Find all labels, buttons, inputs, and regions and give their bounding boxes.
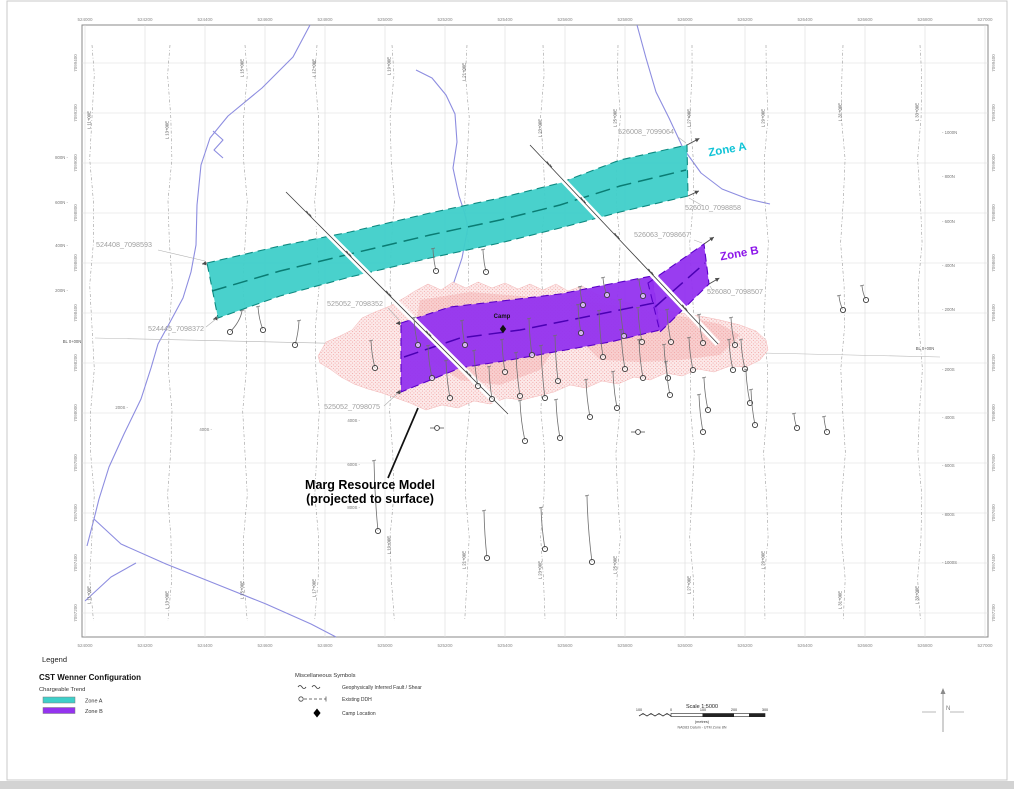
survey-line-label: L 25+00E	[613, 109, 618, 127]
survey-line-label: L 11+00E	[87, 586, 92, 604]
drillhole	[690, 367, 695, 372]
baseline-label: BL 0+00N	[916, 346, 935, 351]
survey-line-label: L 15+00E	[240, 59, 245, 77]
drillhole	[522, 438, 527, 443]
easting-label-top: 525600	[557, 17, 573, 22]
local-grid-label: - 800S	[942, 512, 955, 517]
scale-tick: 100	[700, 708, 706, 712]
easting-label-top: 525200	[437, 17, 453, 22]
legend-title: Legend	[42, 655, 67, 664]
survey-line-label: L 23+00E	[538, 561, 543, 579]
coordinate-label: 525052_7098352	[327, 299, 383, 308]
easting-label-bottom: 524200	[137, 643, 153, 648]
drillhole	[578, 330, 583, 335]
drillhole	[517, 393, 522, 398]
north-label: N	[946, 706, 950, 712]
easting-label-bottom: 524000	[77, 643, 93, 648]
map-content: 5240005240005242005242005244005244005246…	[55, 17, 996, 648]
drillhole	[863, 297, 868, 302]
coordinate-label: 524445_7098372	[148, 324, 204, 333]
easting-label-bottom: 526000	[677, 643, 693, 648]
coordinate-label: 524408_7098593	[96, 240, 152, 249]
northing-label-left: 7097400	[73, 554, 78, 572]
legend-swatch-zone-b	[43, 708, 75, 714]
drillhole	[542, 546, 547, 551]
easting-label-top: 526600	[857, 17, 873, 22]
easting-label-top: 524200	[137, 17, 153, 22]
survey-line-label: L 21+00E	[462, 551, 467, 569]
easting-label-top: 527000	[977, 17, 993, 22]
scale-datum: NAD83 Datum - UTM Zone 8N	[678, 726, 727, 730]
survey-line-label: L 25+00E	[613, 556, 618, 574]
drillhole	[824, 429, 829, 434]
northing-label-left: 7098000	[73, 404, 78, 422]
local-grid-label: - 1000N	[942, 130, 957, 135]
easting-label-top: 525400	[497, 17, 513, 22]
camp-label: Camp	[494, 314, 511, 320]
survey-line-label: L 13+00E	[165, 591, 170, 609]
drillhole	[752, 422, 757, 427]
scale-bar-fill-1	[703, 714, 735, 717]
easting-label-top: 526400	[797, 17, 813, 22]
local-grid-label: 600N -	[55, 200, 68, 205]
drillhole	[665, 375, 670, 380]
drillhole	[580, 302, 585, 307]
easting-label-bottom: 526600	[857, 643, 873, 648]
survey-line-label: L 23+00E	[538, 119, 543, 137]
drillhole	[489, 396, 494, 401]
local-grid-label: 800N -	[55, 155, 68, 160]
northing-label-left: 7099000	[73, 154, 78, 172]
survey-line-label: L 17+00E	[312, 579, 317, 597]
drillhole	[435, 426, 440, 431]
northing-label-right: 7098800	[991, 204, 996, 222]
local-grid-label: - 200N	[942, 307, 955, 312]
local-grid-label: - 400N	[942, 263, 955, 268]
survey-line-label: L 29+00E	[761, 109, 766, 127]
legend-label-zone-b: Zone B	[85, 709, 103, 715]
northing-label-right: 7098600	[991, 254, 996, 272]
northing-label-left: 7098800	[73, 204, 78, 222]
scale-tick: 300	[762, 708, 768, 712]
local-grid-label: 400S -	[199, 427, 212, 432]
legend-misc-title: Miscellaneous Symbols	[295, 673, 356, 679]
drillhole	[640, 375, 645, 380]
survey-line-label: L 27+00E	[687, 576, 692, 594]
map-svg: 5240005240005242005242005244005244005246…	[0, 0, 1014, 789]
local-grid-label: 600S -	[347, 462, 360, 467]
legend-cst-title: CST Wenner Configuration	[39, 673, 141, 682]
baseline-label: BL 0+00N	[63, 339, 82, 344]
drillhole	[587, 414, 592, 419]
annotation-subtitle: (projected to surface)	[306, 492, 434, 506]
easting-label-top: 524600	[257, 17, 273, 22]
drillhole	[260, 327, 265, 332]
northing-label-left: 7098600	[73, 254, 78, 272]
drillhole	[622, 366, 627, 371]
northing-label-right: 7097800	[991, 454, 996, 472]
drillhole	[794, 425, 799, 430]
drillhole	[529, 352, 534, 357]
drillhole	[604, 292, 609, 297]
northing-label-left: 7098400	[73, 304, 78, 322]
drillhole	[668, 339, 673, 344]
easting-label-bottom: 525200	[437, 643, 453, 648]
northing-label-left: 7097600	[73, 504, 78, 522]
survey-line-label: L 19+00E	[387, 536, 392, 554]
drillhole	[429, 375, 434, 380]
local-grid-label: - 400S	[942, 415, 955, 420]
northing-label-right: 7099000	[991, 154, 996, 172]
drillhole	[375, 528, 380, 533]
drillhole	[640, 293, 645, 298]
northing-label-left: 7097200	[73, 604, 78, 622]
northing-label-left: 7097800	[73, 454, 78, 472]
easting-label-bottom: 525000	[377, 643, 393, 648]
legend-label-fault: Geophysically Inferred Fault / Shear	[342, 685, 422, 691]
drillhole	[700, 429, 705, 434]
survey-line-label: L 33+00E	[915, 103, 920, 121]
easting-label-bottom: 526400	[797, 643, 813, 648]
drillhole	[542, 395, 547, 400]
drillhole	[639, 339, 644, 344]
local-grid-label: 400N -	[55, 243, 68, 248]
northing-label-right: 7098000	[991, 404, 996, 422]
easting-label-bottom: 524600	[257, 643, 273, 648]
legend-label-ddh: Existing DDH	[342, 697, 372, 703]
drillhole	[636, 430, 641, 435]
scale-tick: 0	[670, 708, 672, 712]
easting-label-top: 524400	[197, 17, 213, 22]
drillhole	[705, 407, 710, 412]
survey-line-label: L 17+00E	[312, 59, 317, 77]
survey-line-label: L 31+00E	[838, 103, 843, 121]
drillhole	[433, 268, 438, 273]
northing-label-left: 7099200	[73, 104, 78, 122]
coordinate-label: 526008_7099064	[618, 127, 674, 136]
drillhole	[292, 342, 297, 347]
northing-label-right: 7098200	[991, 354, 996, 372]
easting-label-bottom: 525800	[617, 643, 633, 648]
drillhole	[462, 342, 467, 347]
annotation-title: Marg Resource Model	[305, 478, 435, 492]
drillhole	[483, 269, 488, 274]
easting-label-top: 526200	[737, 17, 753, 22]
northing-label-right: 7097600	[991, 504, 996, 522]
northing-label-right: 7098400	[991, 304, 996, 322]
easting-label-bottom: 524400	[197, 643, 213, 648]
easting-label-bottom: 526200	[737, 643, 753, 648]
drillhole	[621, 333, 626, 338]
survey-line-label: L 31+00E	[838, 591, 843, 609]
drillhole	[732, 342, 737, 347]
northing-label-right: 7097400	[991, 554, 996, 572]
easting-label-top: 524000	[77, 17, 93, 22]
bottom-bar	[0, 781, 1014, 789]
drillhole	[475, 383, 480, 388]
survey-line-label: L 11+00E	[87, 111, 92, 129]
local-grid-label: - 200S	[942, 367, 955, 372]
scale-tick: 200	[731, 708, 737, 712]
easting-label-top: 526000	[677, 17, 693, 22]
drillhole	[730, 367, 735, 372]
easting-label-bottom: 527000	[977, 643, 993, 648]
drillhole	[447, 395, 452, 400]
coordinate-label: 526080_7098507	[707, 287, 763, 296]
coordinate-label: 526010_7098858	[685, 203, 741, 212]
survey-line-label: L 29+00E	[761, 551, 766, 569]
northing-label-right: 7099400	[991, 54, 996, 72]
survey-line-label: L 19+00E	[387, 57, 392, 75]
drillhole	[557, 435, 562, 440]
northing-label-left: 7098200	[73, 354, 78, 372]
drillhole	[415, 342, 420, 347]
drillhole	[840, 307, 845, 312]
survey-line-label: L 21+00E	[462, 63, 467, 81]
map-sheet: 5240005240005242005242005244005244005246…	[0, 0, 1014, 789]
northing-label-left: 7099400	[73, 54, 78, 72]
drillhole	[589, 559, 594, 564]
drillhole	[555, 378, 560, 383]
drillhole	[600, 354, 605, 359]
drillhole	[614, 405, 619, 410]
easting-label-top: 525000	[377, 17, 393, 22]
northing-label-right: 7097200	[991, 604, 996, 622]
northing-label-right: 7099200	[991, 104, 996, 122]
easting-label-top: 525800	[617, 17, 633, 22]
local-grid-label: 200S -	[115, 405, 128, 410]
drillhole	[227, 329, 232, 334]
coordinate-label: 526063_7098667	[634, 230, 690, 239]
survey-line-label: L 15+00E	[240, 581, 245, 599]
local-grid-label: - 800N	[942, 174, 955, 179]
drillhole	[484, 555, 489, 560]
easting-label-bottom: 525600	[557, 643, 573, 648]
easting-label-top: 524800	[317, 17, 333, 22]
easting-label-top: 526800	[917, 17, 933, 22]
drillhole	[700, 340, 705, 345]
local-grid-label: 200N -	[55, 288, 68, 293]
local-grid-label: 400S -	[347, 418, 360, 423]
legend-label-camp: Camp Location	[342, 711, 376, 717]
local-grid-label: - 600S	[942, 463, 955, 468]
legend-label-zone-a: Zone A	[85, 699, 103, 705]
scale-unit: (metres)	[695, 720, 710, 724]
local-grid-label: - 600N	[942, 219, 955, 224]
scale-bar-fill-2	[749, 714, 765, 717]
drillhole	[502, 369, 507, 374]
survey-line-label: L 33+00E	[915, 586, 920, 604]
easting-label-bottom: 525400	[497, 643, 513, 648]
local-grid-label: - 1000S	[942, 560, 957, 565]
easting-label-bottom: 524800	[317, 643, 333, 648]
legend-cst-subtitle: Chargeable Trend	[39, 687, 85, 693]
drillhole	[667, 392, 672, 397]
scale-tick: 100	[636, 708, 642, 712]
survey-line-label: L 27+00E	[687, 109, 692, 127]
survey-line-label: L 13+00E	[165, 121, 170, 139]
drillhole	[372, 365, 377, 370]
easting-label-bottom: 526800	[917, 643, 933, 648]
coordinate-label: 525052_7098075	[324, 402, 380, 411]
legend-swatch-zone-a	[43, 697, 75, 703]
